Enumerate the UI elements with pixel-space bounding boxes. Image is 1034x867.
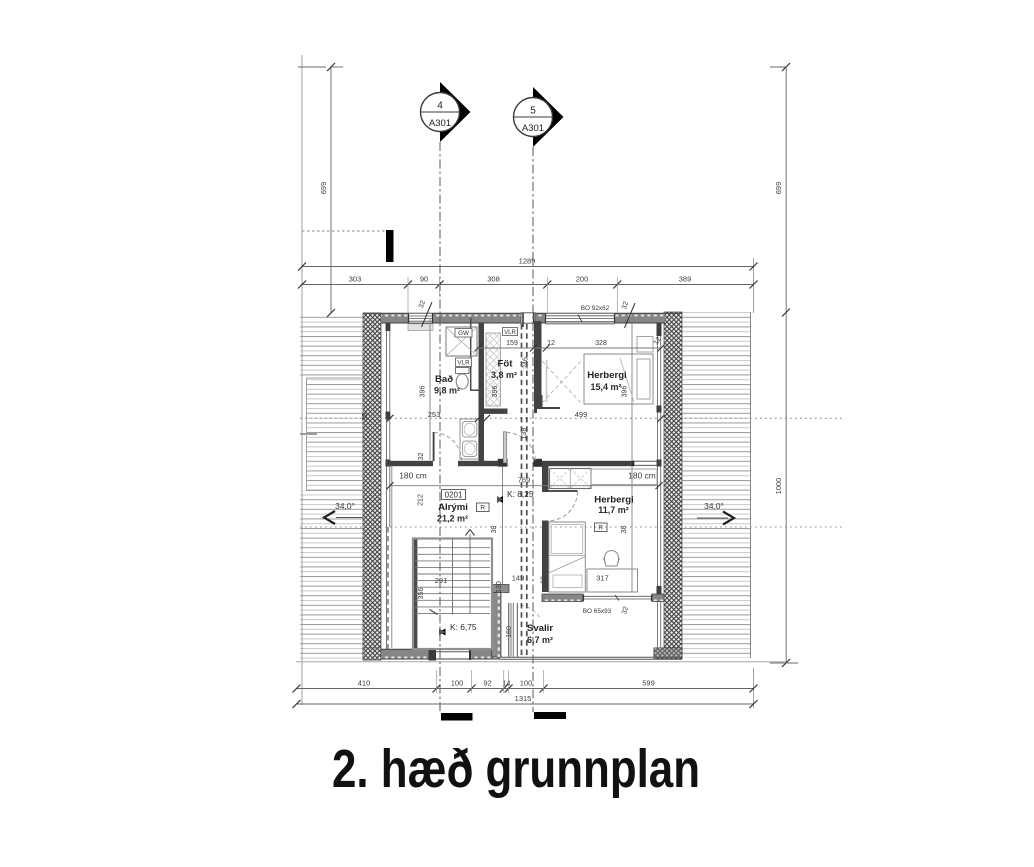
svg-text:Bað: Bað: [435, 374, 453, 385]
svg-text:Föt: Föt: [498, 359, 514, 370]
svg-text:317: 317: [596, 574, 609, 583]
svg-text:K: 8,25: K: 8,25: [507, 489, 534, 499]
svg-text:A301: A301: [429, 118, 451, 129]
svg-text:VLR: VLR: [504, 330, 516, 336]
svg-text:92: 92: [483, 679, 491, 688]
svg-text:32: 32: [621, 606, 630, 616]
svg-text:BO 65x93: BO 65x93: [583, 608, 612, 615]
svg-text:14: 14: [503, 681, 511, 688]
svg-text:769: 769: [518, 476, 531, 485]
svg-text:180 cm: 180 cm: [399, 471, 426, 481]
svg-text:Herbergi: Herbergi: [587, 370, 626, 381]
svg-text:246: 246: [523, 357, 530, 369]
svg-text:499: 499: [575, 410, 588, 419]
svg-text:R: R: [480, 505, 485, 512]
svg-text:11,7 m²: 11,7 m²: [598, 505, 629, 515]
svg-text:410: 410: [358, 679, 371, 688]
svg-text:12: 12: [653, 336, 663, 346]
svg-text:1289: 1289: [519, 257, 536, 266]
svg-text:396: 396: [492, 386, 499, 398]
svg-text:130: 130: [496, 581, 503, 593]
svg-text:149: 149: [512, 574, 525, 583]
svg-text:599: 599: [642, 679, 655, 688]
svg-text:38: 38: [621, 526, 628, 534]
svg-text:1000: 1000: [774, 478, 783, 495]
svg-text:3,8 m²: 3,8 m²: [491, 370, 517, 380]
svg-text:38: 38: [491, 526, 498, 534]
svg-text:389: 389: [679, 275, 692, 284]
svg-text:291: 291: [435, 576, 448, 585]
svg-text:396: 396: [420, 386, 427, 398]
svg-text:160: 160: [506, 626, 513, 638]
svg-text:R: R: [598, 525, 603, 532]
svg-text:12: 12: [547, 340, 555, 347]
svg-text:0201: 0201: [445, 491, 463, 500]
svg-text:200: 200: [576, 275, 589, 284]
svg-text:253: 253: [428, 410, 441, 419]
svg-text:9,8 m²: 9,8 m²: [434, 386, 460, 396]
svg-text:12: 12: [541, 576, 548, 584]
svg-text:32: 32: [621, 301, 630, 311]
svg-text:180 cm: 180 cm: [628, 471, 655, 481]
svg-text:34,0°: 34,0°: [335, 501, 355, 511]
svg-text:32: 32: [418, 300, 427, 310]
svg-text:328: 328: [595, 340, 607, 347]
svg-text:15,4 m²: 15,4 m²: [590, 382, 621, 392]
svg-text:21,2 m²: 21,2 m²: [437, 514, 468, 524]
svg-text:1315: 1315: [515, 694, 532, 703]
svg-text:303: 303: [349, 275, 362, 284]
svg-text:5: 5: [530, 106, 536, 117]
svg-text:90: 90: [420, 275, 428, 284]
svg-text:138: 138: [521, 428, 528, 440]
svg-text:699: 699: [774, 182, 783, 195]
svg-text:K: 6,75: K: 6,75: [450, 622, 477, 632]
svg-text:34,0°: 34,0°: [704, 501, 724, 511]
svg-text:100: 100: [520, 679, 533, 688]
svg-text:699: 699: [319, 182, 328, 195]
svg-text:2. hæð grunnplan: 2. hæð grunnplan: [332, 739, 700, 799]
svg-text:4: 4: [437, 101, 443, 112]
svg-text:32: 32: [418, 453, 425, 461]
svg-text:100: 100: [451, 679, 464, 688]
svg-text:VLR: VLR: [457, 360, 470, 367]
svg-text:308: 308: [487, 275, 500, 284]
svg-text:Svalir: Svalir: [527, 623, 553, 634]
svg-text:159: 159: [506, 340, 518, 347]
svg-text:396: 396: [622, 386, 629, 398]
svg-text:6,7 m²: 6,7 m²: [527, 635, 553, 645]
svg-text:Herbergi: Herbergi: [594, 495, 633, 506]
svg-text:Alrými: Alrými: [438, 502, 468, 513]
svg-text:GW: GW: [458, 330, 469, 337]
svg-text:356: 356: [418, 588, 425, 600]
svg-text:35: 35: [362, 413, 369, 421]
svg-text:212: 212: [418, 494, 425, 506]
svg-text:BO 92x62: BO 92x62: [581, 305, 610, 312]
svg-text:A301: A301: [522, 123, 544, 134]
